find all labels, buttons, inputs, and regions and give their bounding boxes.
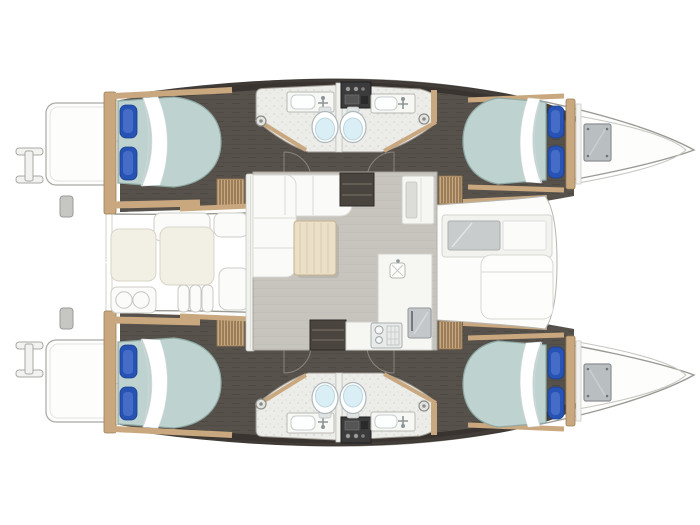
- forward-window-panel: [503, 221, 546, 250]
- cockpit-bench: [214, 213, 248, 237]
- cockpit-bench: [219, 268, 249, 310]
- cabinet-dark-forward: [340, 173, 374, 206]
- cabinet-dark-aft: [310, 320, 346, 350]
- cockpit-steps: [178, 285, 213, 312]
- sofa-left-section: [253, 175, 296, 277]
- forward-window-band: [442, 215, 552, 257]
- refrigerator: [408, 308, 431, 338]
- catamaran-floorplan: [0, 0, 700, 525]
- cockpit-bench-cream: [111, 229, 156, 281]
- cockpit-bench-cream: [160, 227, 214, 285]
- cockpit: [111, 213, 249, 313]
- foredeck-compartment: [437, 196, 557, 329]
- salon-table: [294, 221, 339, 278]
- galley-stove: [371, 323, 402, 348]
- forward-window-glass: [448, 221, 500, 250]
- galley-upper-cabinet: [402, 176, 434, 224]
- helm-seat: [111, 287, 156, 313]
- salon: [253, 172, 437, 350]
- floorplan-canvas: [0, 0, 700, 525]
- sunpad: [481, 255, 553, 319]
